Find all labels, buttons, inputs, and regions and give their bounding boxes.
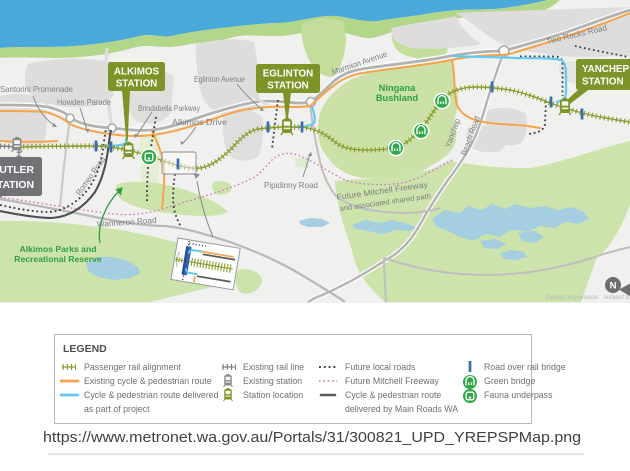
svg-text:Road over rail bridge: Road over rail bridge xyxy=(484,362,566,372)
svg-text:Ningana: Ningana xyxy=(379,83,417,93)
svg-text:Future Mitchell Freeway: Future Mitchell Freeway xyxy=(345,376,439,386)
svg-text:Design impression subject to: Design impression subject to xyxy=(546,294,630,301)
svg-text:EGLINTON: EGLINTON xyxy=(263,69,313,80)
svg-text:Bushland: Bushland xyxy=(376,93,419,103)
svg-text:Fauna underpass: Fauna underpass xyxy=(484,390,553,400)
svg-text:Existing station: Existing station xyxy=(243,376,302,386)
svg-text:N: N xyxy=(610,281,617,292)
svg-text:Station location: Station location xyxy=(243,390,303,400)
svg-text:Santorini Promenade: Santorini Promenade xyxy=(0,84,73,94)
svg-text:delivered by Main Roads WA: delivered by Main Roads WA xyxy=(345,404,458,414)
svg-text:Cycle & pedestrian route deliv: Cycle & pedestrian route delivered xyxy=(84,390,219,400)
svg-text:STATION: STATION xyxy=(116,79,158,90)
svg-text:STATION: STATION xyxy=(582,77,624,88)
svg-text:Howden Parade: Howden Parade xyxy=(57,97,111,107)
svg-text:Passenger rail alignment: Passenger rail alignment xyxy=(84,362,181,372)
svg-text:Alkimos Drive: Alkimos Drive xyxy=(172,117,227,127)
svg-text:Existing cycle & pedestrian ro: Existing cycle & pedestrian route xyxy=(84,376,212,386)
svg-text:BUTLER: BUTLER xyxy=(0,165,34,176)
svg-text:Alkimos Parks and: Alkimos Parks and xyxy=(20,244,97,254)
svg-text:STATION: STATION xyxy=(267,81,309,92)
svg-text:Cycle & pedestrian route: Cycle & pedestrian route xyxy=(345,390,441,400)
svg-text:Future local roads: Future local roads xyxy=(345,362,416,372)
svg-text:Recreational Reserve: Recreational Reserve xyxy=(14,254,102,264)
svg-text:STATION: STATION xyxy=(0,180,34,191)
svg-text:Green bridge: Green bridge xyxy=(484,376,535,386)
svg-text:LEGEND: LEGEND xyxy=(63,343,107,355)
svg-text:https://www.metronet.wa.gov.au: https://www.metronet.wa.gov.au/Portals/3… xyxy=(43,430,581,446)
svg-text:YANCHEP: YANCHEP xyxy=(582,64,629,75)
svg-text:Eglinton Avenue: Eglinton Avenue xyxy=(194,74,245,84)
svg-text:as part of project: as part of project xyxy=(84,404,150,414)
svg-text:Brindabella Parkway: Brindabella Parkway xyxy=(138,103,201,113)
svg-text:ALKIMOS: ALKIMOS xyxy=(114,67,160,78)
svg-text:Pipidinny Road: Pipidinny Road xyxy=(264,180,318,190)
svg-text:Existing rail line: Existing rail line xyxy=(243,362,304,372)
